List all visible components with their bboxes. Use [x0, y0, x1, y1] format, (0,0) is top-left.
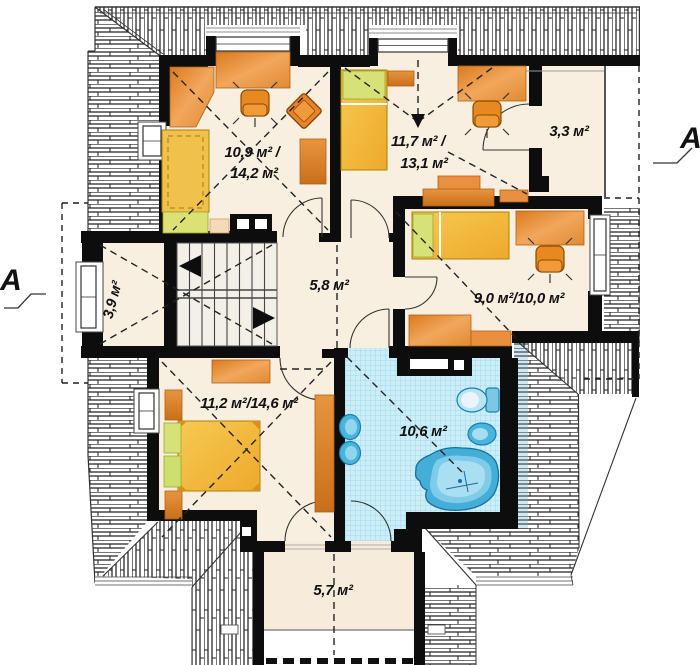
svg-text:10,6 м²: 10,6 м²: [399, 423, 448, 440]
svg-text:3,3 м²: 3,3 м²: [549, 123, 590, 140]
svg-text:5,7 м²: 5,7 м²: [313, 582, 354, 599]
svg-text:11,7 м² /: 11,7 м² /: [391, 133, 447, 150]
svg-text:9,0 м²/10,0 м²: 9,0 м²/10,0 м²: [474, 290, 566, 307]
svg-text:5,8 м²: 5,8 м²: [309, 277, 350, 294]
svg-text:10,9 м² /: 10,9 м² /: [224, 144, 281, 161]
svg-text:13,1 м²: 13,1 м²: [400, 155, 449, 172]
svg-text:A: A: [0, 264, 22, 297]
svg-text:14,2 м²: 14,2 м²: [230, 165, 279, 182]
svg-text:11,2 м²/14,6 м²: 11,2 м²/14,6 м²: [200, 395, 299, 412]
